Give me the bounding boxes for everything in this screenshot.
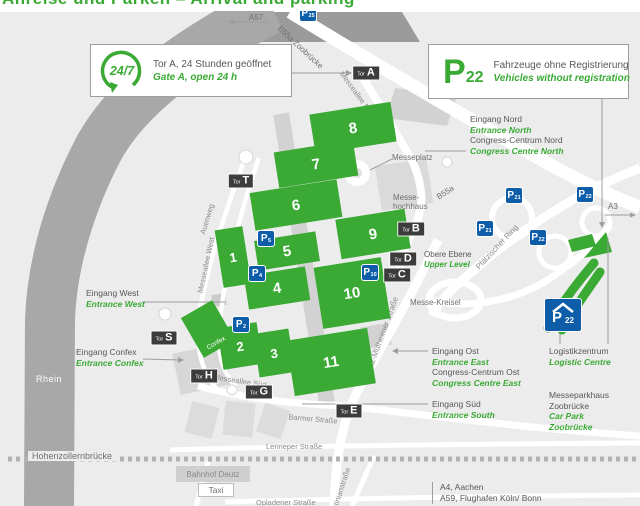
p-glyph: P	[236, 320, 243, 330]
p-number: 2	[243, 324, 246, 330]
tor-word: Tor	[156, 337, 164, 343]
garage-p-number: 22	[565, 316, 574, 325]
p-glyph: P	[531, 233, 538, 243]
congress-north-en: Congress Centre North	[470, 146, 564, 157]
p-number: 21	[486, 228, 492, 234]
gate-sign-tor-a: TorA	[353, 67, 379, 80]
congress-east-de: Congress-Centrum Ost	[432, 367, 521, 378]
logistics-de: Logistikzentrum	[549, 346, 611, 357]
messehochhaus-line2: hochhaus	[393, 202, 428, 211]
parking-sign-p5: P5	[258, 231, 274, 246]
gate-sign-tor-g: TorG	[246, 386, 272, 399]
p-number: 10	[371, 272, 377, 278]
entrance-east-de: Eingang Ost	[432, 346, 521, 357]
bahnhof-deutz-box: Bahnhof Deutz	[176, 466, 250, 482]
destination-a59: A59, Flughafen Köln/ Bonn	[440, 493, 542, 504]
hall-3-number: 3	[269, 345, 278, 361]
hohenzollernbruecke-text: Hohenzollernbrücke	[32, 451, 112, 461]
upper-level-de: Obere Ebene	[424, 250, 472, 260]
tor-word: Tor	[195, 375, 203, 381]
parking-sign-p4: P4	[249, 266, 265, 281]
entrance-west-de: Eingang West	[86, 288, 145, 299]
hall-6-number: 6	[291, 196, 302, 214]
rhine-label: Rhein	[36, 374, 62, 384]
parking-sign-p22-north: P22	[577, 187, 593, 202]
p-glyph: P	[578, 190, 585, 200]
p-glyph: P	[478, 224, 485, 234]
entrance-north-label: Eingang Nord Entrance North Congress-Cen…	[470, 114, 564, 156]
parking-sign-p10: P10	[362, 265, 378, 280]
hall-10: 10	[314, 257, 391, 329]
messehochhaus-label: Messe- hochhaus	[393, 193, 428, 211]
car-park-en-2: Zoobrücke	[549, 422, 609, 433]
entrance-west-label: Eingang West Entrance West	[86, 288, 145, 309]
gate-sign-tor-t: TorT	[229, 175, 253, 188]
messeplatz-label: Messeplatz	[392, 153, 432, 162]
entrance-confex-en: Entrance Confex	[76, 358, 144, 369]
bahnhof-text: Bahnhof Deutz	[187, 470, 240, 479]
logistics-en: Logistic Centre	[549, 357, 611, 368]
entrance-confex-label: Eingang Confex Entrance Confex	[76, 347, 144, 368]
p-number: 22	[586, 194, 592, 200]
messe-kreisel-label: Messe-Kreisel	[410, 298, 461, 309]
messehochhaus-line1: Messe-	[393, 193, 428, 202]
tor-letter: B	[412, 224, 420, 234]
a57-text: A57	[249, 13, 263, 22]
gate-sign-tor-h: TorH	[191, 370, 217, 383]
tor-letter: D	[404, 254, 412, 264]
congress-east-en: Congress Centre East	[432, 378, 521, 389]
24-7-text: 24/7	[99, 64, 145, 78]
24-7-icon: 24/7	[99, 49, 145, 93]
gate-sign-tor-b: TorB	[398, 223, 424, 236]
p-glyph: P	[261, 234, 268, 244]
roundabout-tor-t	[239, 150, 253, 164]
gate-a-info-box: 24/7 Tor A, 24 Stunden geöffnet Gate A, …	[90, 44, 292, 97]
koelnmesse-site-map: Anreise und Parken – Arrival and parking…	[0, 0, 640, 506]
garage-roof-icon	[545, 300, 581, 314]
p22-big-number: 22	[466, 69, 484, 87]
p22-info-box: P 22 Fahrzeuge ohne Registrierung Vehicl…	[428, 44, 629, 99]
p22-info-de: Fahrzeuge ohne Registrierung	[493, 59, 629, 72]
tor-letter: S	[165, 333, 172, 343]
cropped-page-title: Anreise und Parken – Arrival and parking	[0, 0, 640, 11]
street-opladener: Opladener Straße	[256, 498, 316, 506]
p-number: 21	[515, 195, 521, 201]
street-lenneper: Lenneper Straße	[266, 442, 322, 451]
entrance-north-de: Eingang Nord	[470, 114, 564, 125]
parking-sign-p21-north: P21	[506, 188, 522, 203]
p-number: 22	[539, 237, 545, 243]
roundabout-tor-h	[227, 385, 237, 395]
tor-letter: E	[350, 406, 357, 416]
car-park-de-1: Messeparkhaus	[549, 390, 609, 401]
taxi-text: Taxi	[208, 485, 223, 495]
p-number: 25	[309, 13, 315, 19]
tor-letter: A	[367, 68, 375, 78]
entrance-west-en: Entrance West	[86, 299, 145, 310]
motorway-a3-label: A3	[608, 202, 618, 211]
p22-info-en: Vehicles without registration	[493, 72, 629, 85]
hall-9-number: 9	[368, 225, 379, 243]
rhein-text: Rhein	[36, 374, 62, 384]
entrance-south-de: Eingang Süd	[432, 399, 495, 410]
p-number: 4	[259, 273, 262, 279]
hall-2-number: 2	[235, 338, 244, 354]
p-glyph: P	[363, 268, 370, 278]
roundabout-north	[442, 157, 452, 167]
hall-8-number: 8	[348, 119, 359, 137]
motorway-destinations-label: A4, Aachen A59, Flughafen Köln/ Bonn	[432, 482, 542, 504]
tanzbrunnen-block-2	[222, 401, 255, 438]
p-glyph: P	[507, 191, 514, 201]
hall-11-number: 11	[322, 352, 340, 371]
entrance-south-label: Eingang Süd Entrance South	[432, 399, 495, 420]
opladener-text: Opladener Straße	[256, 498, 316, 506]
upper-level-en: Upper Level	[424, 260, 472, 270]
messe-kreisel-text: Messe-Kreisel	[410, 298, 461, 309]
parking-sign-p22-south: P22	[530, 230, 546, 245]
a3-text: A3	[608, 202, 618, 211]
garage-p-glyph: P	[552, 309, 562, 326]
tor-word: Tor	[394, 258, 402, 264]
tor-word: Tor	[402, 228, 410, 234]
tor-letter: H	[205, 371, 213, 381]
entrance-east-en: Entrance East	[432, 357, 521, 368]
destination-a4: A4, Aachen	[440, 482, 542, 493]
p-glyph: P	[252, 269, 259, 279]
hall-10-number: 10	[342, 283, 361, 302]
lenneper-text: Lenneper Straße	[266, 442, 322, 451]
entrance-east-label: Eingang Ost Entrance East Congress-Centr…	[432, 346, 521, 388]
p22-big-p: P	[443, 57, 466, 87]
motorway-a57-label: A57	[249, 13, 263, 22]
gate-sign-tor-e: TorE	[337, 405, 362, 418]
entrance-south-en: Entrance South	[432, 410, 495, 421]
tor-word: Tor	[250, 391, 258, 397]
gate-sign-tor-d: TorD	[390, 253, 416, 266]
taxi-box: Taxi	[198, 483, 234, 497]
logistics-centre-label: Logistikzentrum Logistic Centre	[549, 346, 611, 367]
p-number: 5	[268, 238, 271, 244]
hall-4-number: 4	[272, 279, 283, 297]
upper-level-label: Obere Ebene Upper Level	[424, 250, 472, 270]
hall-1-number: 1	[228, 249, 237, 265]
entrance-confex-de: Eingang Confex	[76, 347, 144, 358]
hall-7-number: 7	[311, 155, 322, 173]
tor-letter: T	[242, 176, 249, 186]
tor-word: Tor	[233, 180, 241, 186]
car-park-garage-icon-p22: P 22	[545, 299, 581, 331]
gate-sign-tor-c: TorC	[384, 269, 410, 282]
tor-word: Tor	[388, 274, 396, 280]
tor-word: Tor	[341, 410, 349, 416]
congress-north-de: Congress-Centrum Nord	[470, 135, 564, 146]
p22-big-icon: P 22	[443, 57, 483, 87]
gate-a-info-de: Tor A, 24 Stunden geöffnet	[153, 58, 271, 71]
gate-a-info-en: Gate A, open 24 h	[153, 71, 271, 84]
parking-sign-p2: P2	[233, 317, 249, 332]
parking-sign-p21-south: P21	[477, 221, 493, 236]
cropped-page-title-text: Anreise und Parken – Arrival and parking	[2, 0, 355, 9]
tor-word: Tor	[357, 72, 365, 78]
car-park-en-1: Car Park	[549, 411, 609, 422]
hall-5-number: 5	[282, 242, 293, 260]
tor-letter: C	[398, 270, 406, 280]
entrance-north-en: Entrance North	[470, 125, 564, 136]
gate-sign-tor-s: TorS	[152, 332, 177, 345]
car-park-de-2: Zoobrücke	[549, 401, 609, 412]
car-park-zoobruecke-label: Messeparkhaus Zoobrücke Car Park Zoobrüc…	[549, 390, 609, 432]
hohenzollernbruecke-label: Hohenzollernbrücke	[28, 451, 116, 461]
messeplatz-text: Messeplatz	[392, 153, 432, 162]
tor-letter: G	[260, 387, 269, 397]
roundabout-tor-s	[159, 308, 171, 320]
